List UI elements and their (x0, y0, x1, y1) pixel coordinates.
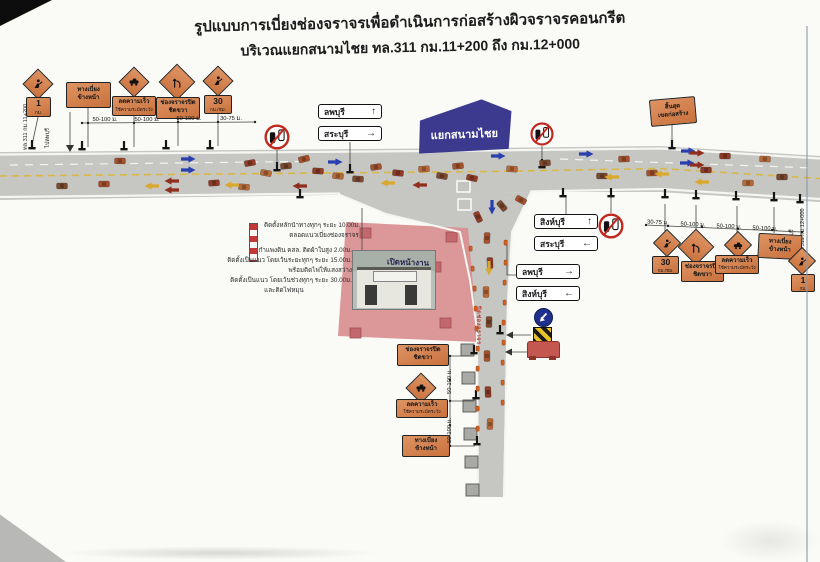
vehicle-symbol-icon (415, 382, 427, 394)
vehicle-symbol-icon (733, 240, 744, 251)
no-overtaking-sign (530, 122, 554, 151)
no-overtaking-icon (264, 124, 290, 150)
guide-sign-lopburi: ลพบุรี→ (516, 264, 580, 279)
distance-label: 50-100 ม. (128, 114, 166, 124)
scan-smudge (60, 546, 380, 560)
no-overtaking-icon (598, 213, 624, 239)
no-overtaking-sign (598, 213, 624, 244)
distance-label: 30-75 ม. (212, 113, 250, 123)
guide-sign-singburi: สิงห์บุรี↑ (534, 214, 598, 229)
merge-symbol-icon (690, 241, 703, 254)
up-arrow-icon: ↑ (371, 107, 376, 117)
distance-1km-plate: 1 กม. (791, 274, 815, 292)
detour-ahead-sign: ทางเบี่ยง ข้างหน้า (402, 435, 450, 457)
photo-door (365, 285, 377, 305)
note-guide-posts: ติดตั้งหลักนำทางทุกๆ ระยะ 10.00ม. ตลอดแน… (264, 221, 384, 241)
keep-left-arrow-icon (535, 309, 552, 326)
end-of-work-zone-sign: สิ้นสุด เขตก่อสร้าง (649, 96, 697, 127)
photo-door (405, 285, 417, 305)
scan-smudge (720, 520, 820, 562)
traffic-diversion-plan-document: รูปแบบการเบี่ยงช่องจราจรเพื่อดำเนินการก่… (0, 0, 820, 562)
distance-label: 50-100 ม. (748, 222, 782, 233)
no-overtaking-sign (264, 124, 290, 155)
reduce-speed-sign: ลดความเร็ว ใช้ความระมัดระวัง (112, 96, 156, 116)
guide-sign-saraburi: สระบุรี→ (318, 126, 382, 141)
photo-signboard (373, 271, 417, 282)
km-marker-start-direction: ไปลพบุรี (44, 128, 52, 148)
work-area-label: เปิดหน้างาน (376, 255, 440, 270)
reduce-speed-sign: ลดความเร็ว ใช้ความระมัดระวัง (715, 255, 759, 274)
distance-label: 50-100 ม. (170, 113, 208, 123)
merge-symbol-icon (171, 76, 184, 89)
note-barrier-wall: กำแพงดิน คสล. ติดผ้าใบสูง 2.00ม. ติดตั้ง… (216, 246, 352, 296)
worker-symbol-icon (32, 78, 44, 90)
distance-label: 50-100 ม. (444, 418, 454, 443)
detour-ahead-sign: ทางเบี่ยง ข้างหน้า (66, 82, 111, 108)
distance-1km-plate: 1 กม. (26, 97, 51, 117)
keep-left-sign (534, 308, 553, 327)
left-arrow-icon: ← (582, 239, 592, 249)
worker-symbol-icon (212, 75, 224, 87)
left-arrow-icon: ← (564, 289, 574, 299)
traffic-barrier (527, 341, 558, 360)
speed-limit-30-sign: 30 กม./ชม. (204, 95, 232, 114)
guide-sign-saraburi: สระบุรี← (534, 236, 598, 251)
distance-label: 50-100 ม. (444, 369, 454, 394)
right-arrow-icon: → (366, 129, 376, 139)
speed-limit-30-sign: 30 กม./ชม. (652, 256, 679, 274)
distance-label: 50-100 ม. (712, 220, 746, 231)
right-arrow-icon: → (564, 267, 574, 277)
distance-label: 50-100 ม. (86, 114, 124, 124)
guide-sign-lopburi: ลพบุรี↑ (318, 104, 382, 119)
distance-label: 30-75 ม. (641, 216, 675, 227)
no-overtaking-icon (530, 122, 554, 146)
up-arrow-icon: ↑ (587, 217, 592, 227)
closed-lane-label: ปิดช่องจราจร (474, 306, 482, 345)
scan-edge-line (806, 26, 808, 562)
worker-symbol-icon (662, 238, 673, 249)
reduce-speed-sign: ลดความเร็ว ใช้ความระมัดระวัง (396, 399, 448, 418)
lane-closed-sign: ช่องจราจรปิด ชิดขวา (397, 344, 449, 366)
vehicle-symbol-icon (128, 76, 140, 88)
distance-label: 50-100 ม. (676, 218, 710, 229)
guide-sign-singburi: สิงห์บุรี← (516, 286, 580, 301)
